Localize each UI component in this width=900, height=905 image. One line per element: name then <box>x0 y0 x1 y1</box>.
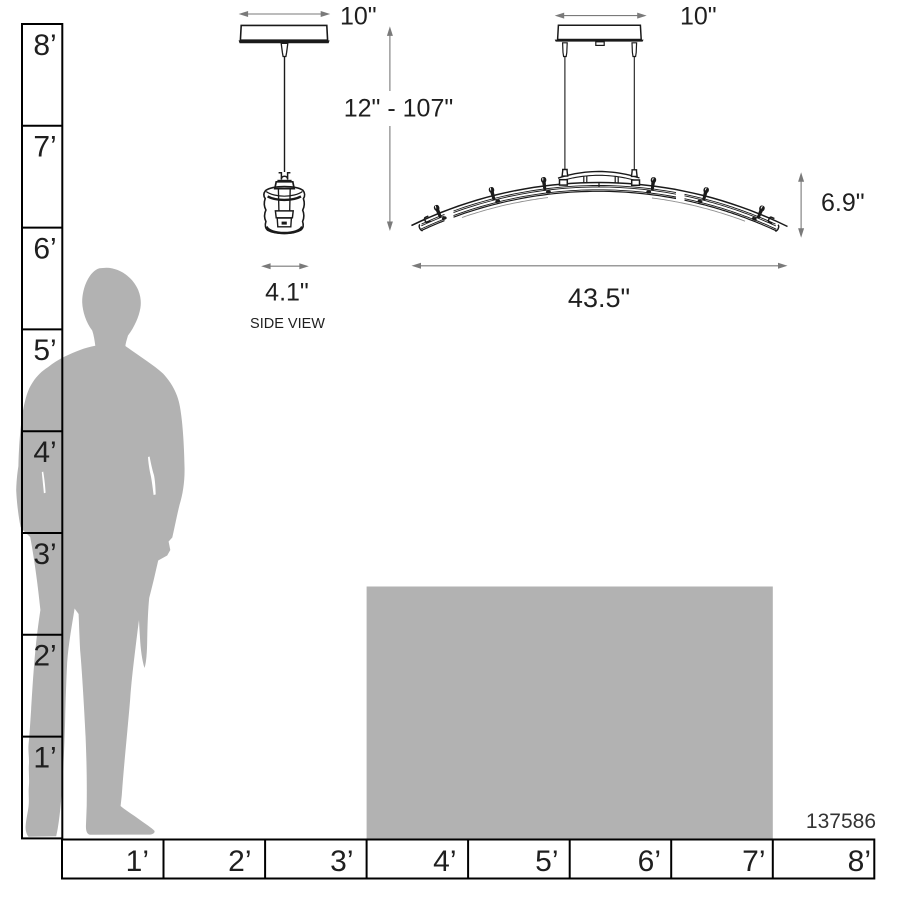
svg-text:8’: 8’ <box>33 29 56 62</box>
svg-text:3’: 3’ <box>33 538 56 571</box>
svg-text:10": 10" <box>340 3 377 31</box>
svg-text:2’: 2’ <box>228 845 251 878</box>
svg-text:2’: 2’ <box>33 640 56 673</box>
svg-text:1’: 1’ <box>126 845 149 878</box>
svg-text:7’: 7’ <box>33 131 56 164</box>
svg-text:3’: 3’ <box>330 845 353 878</box>
svg-text:43.5": 43.5" <box>568 283 630 313</box>
svg-text:5’: 5’ <box>33 334 56 367</box>
svg-text:4’: 4’ <box>433 845 456 878</box>
svg-text:8’: 8’ <box>848 845 871 878</box>
svg-text:12" - 107": 12" - 107" <box>344 95 454 123</box>
svg-text:SIDE VIEW: SIDE VIEW <box>250 316 325 332</box>
svg-text:1’: 1’ <box>33 741 56 774</box>
svg-text:4.1": 4.1" <box>265 279 309 307</box>
svg-text:137586: 137586 <box>806 810 876 833</box>
svg-text:4’: 4’ <box>33 436 56 469</box>
svg-text:6’: 6’ <box>33 232 56 265</box>
svg-text:6’: 6’ <box>638 845 661 878</box>
svg-text:6.9": 6.9" <box>821 189 865 217</box>
svg-text:10": 10" <box>680 3 717 31</box>
svg-text:5’: 5’ <box>535 845 558 878</box>
svg-text:7’: 7’ <box>742 845 765 878</box>
